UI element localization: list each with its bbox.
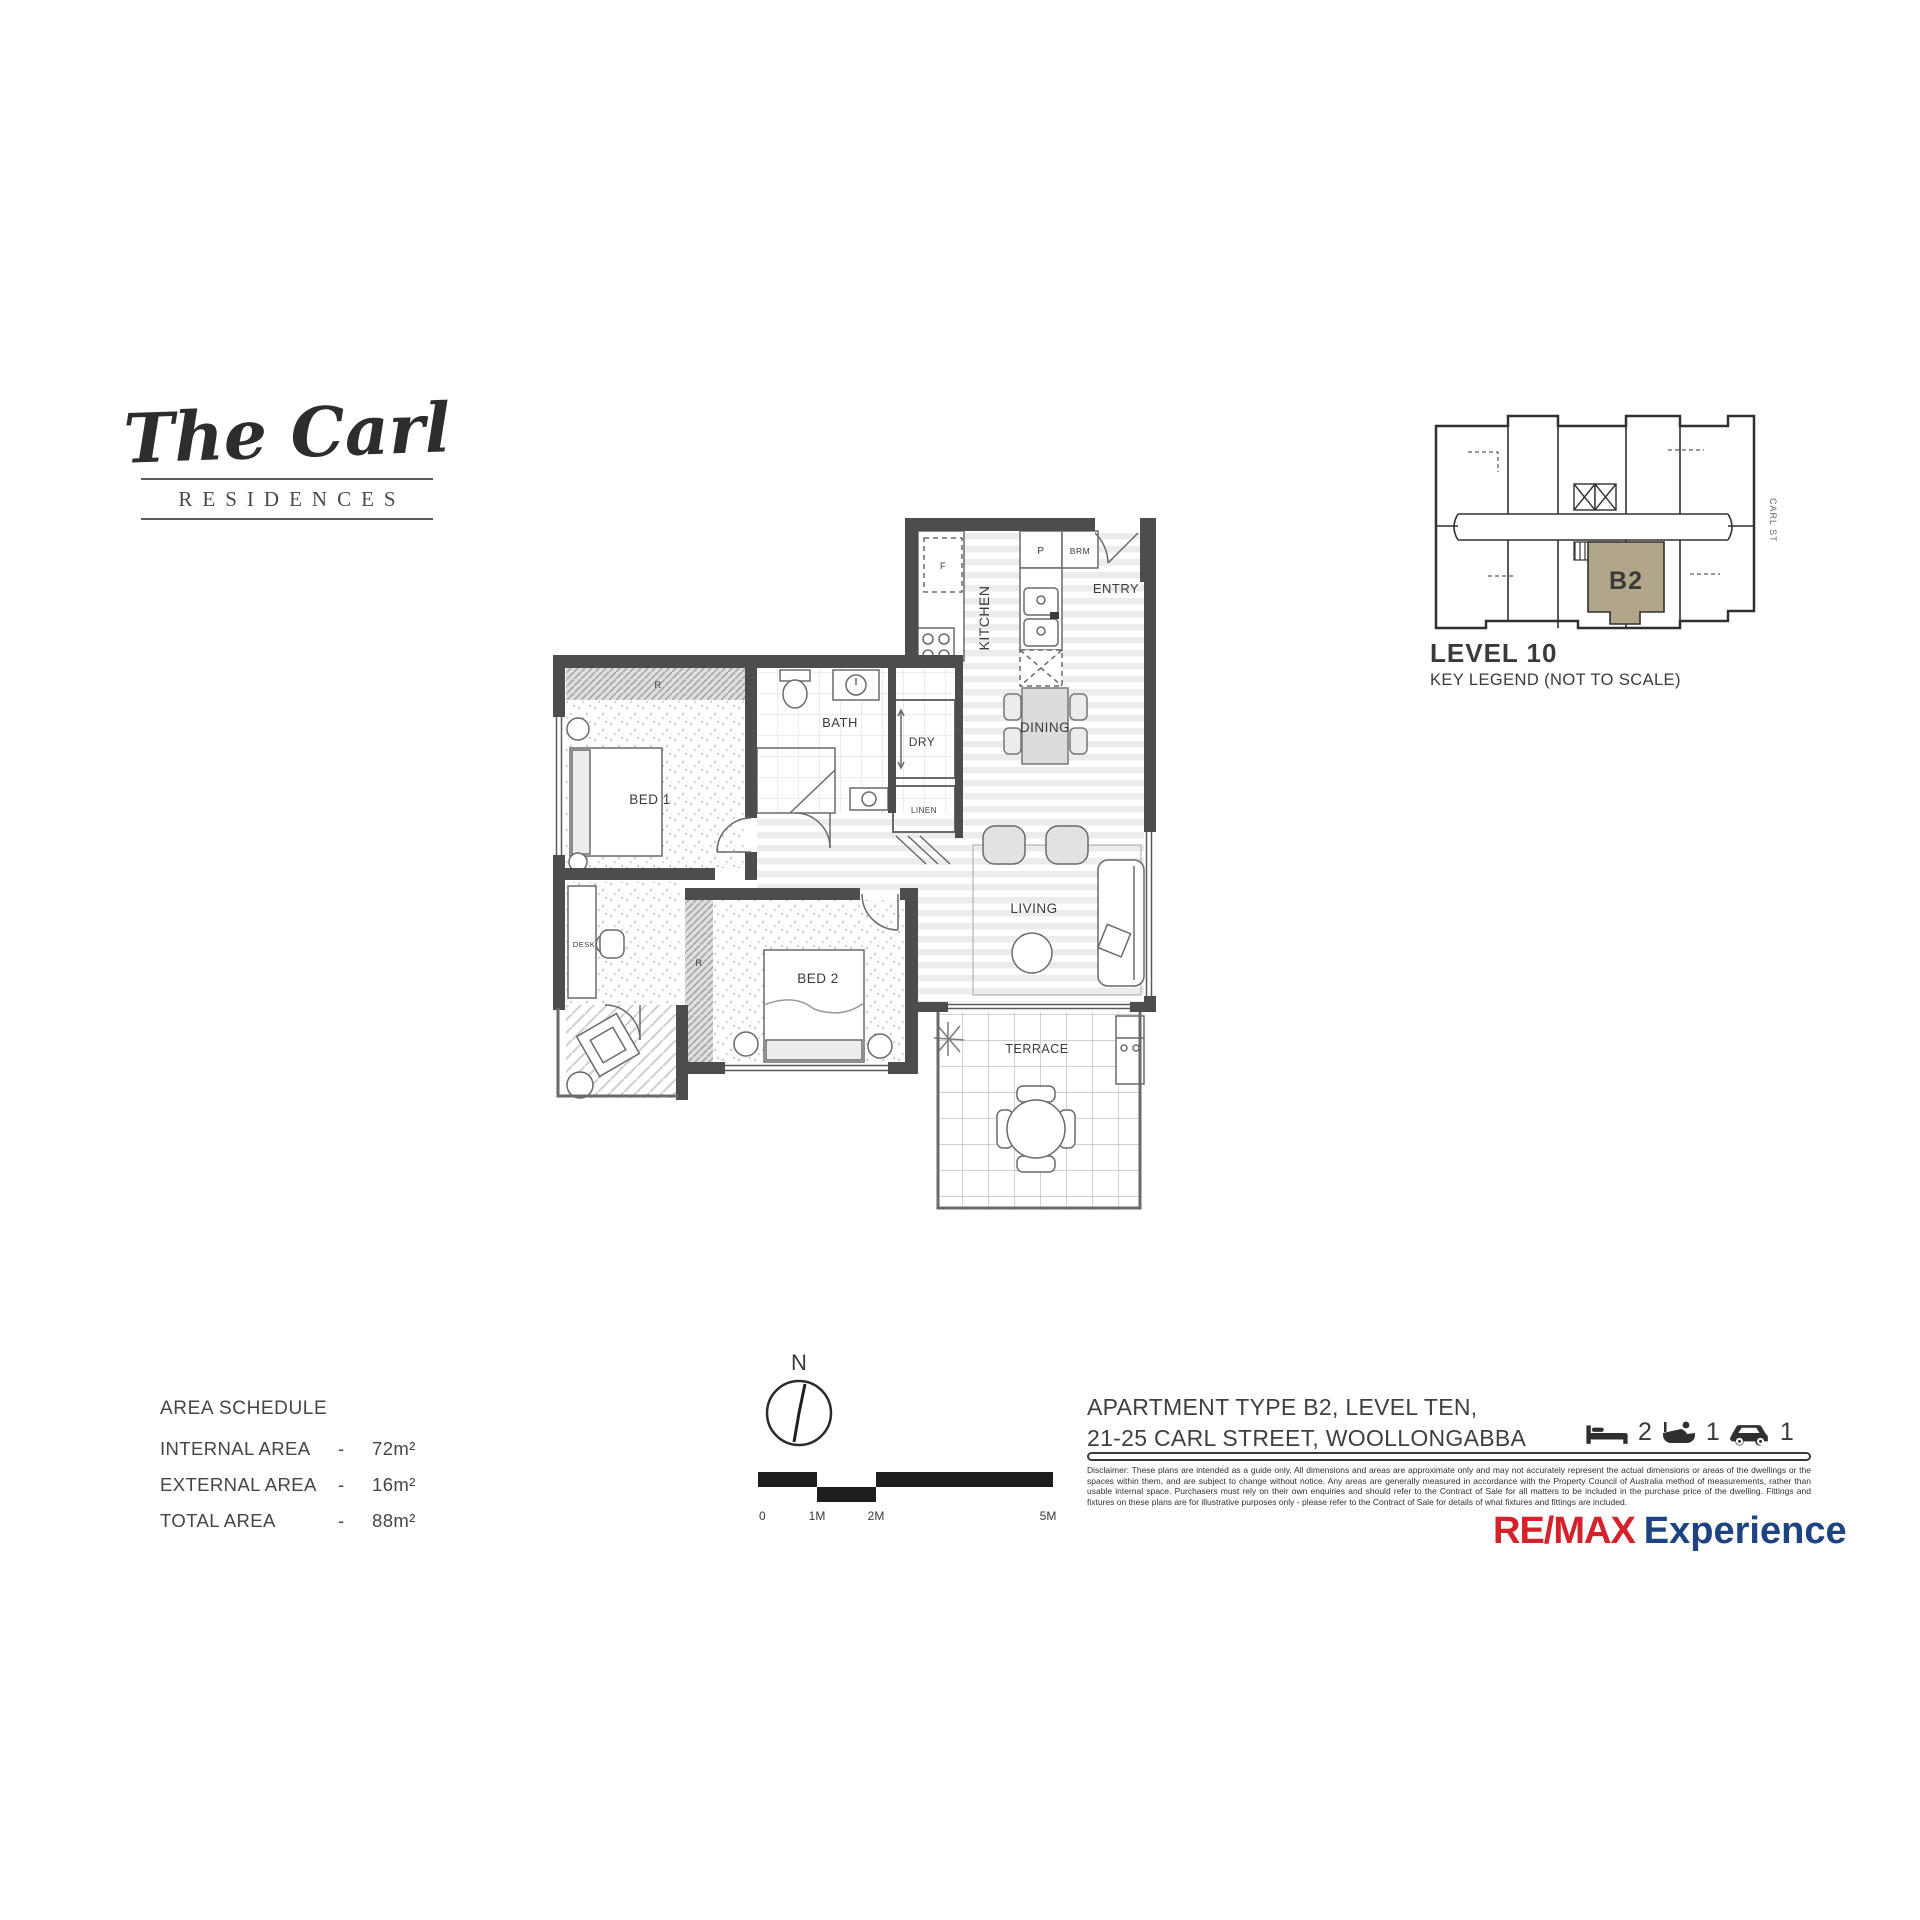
scale-2m: 2M <box>868 1509 885 1523</box>
label-dining: DINING <box>1020 720 1070 735</box>
north-label: N <box>791 1350 807 1375</box>
scale-1m: 1M <box>809 1509 826 1523</box>
label-kitchen: KITCHEN <box>976 586 992 651</box>
label-bed1: BED 1 <box>629 792 671 807</box>
key-legend-plan: B2 <box>1428 406 1763 642</box>
label-pantry: P <box>1037 546 1044 557</box>
legend-building-outline: B2 <box>1436 416 1754 628</box>
address-line2: 21-25 CARL STREET, WOOLLONGABBA <box>1087 1423 1526 1454</box>
disclaimer-text: Disclaimer: These plans are intended as … <box>1087 1465 1811 1507</box>
label-fridge: F <box>940 561 946 571</box>
area-schedule-title: AREA SCHEDULE <box>160 1398 540 1420</box>
legend-unit-label: B2 <box>1609 567 1643 595</box>
feature-icons: 2 1 1 <box>1585 1418 1794 1447</box>
label-linen: LINEN <box>911 806 937 815</box>
label-broom: BRM <box>1070 546 1090 556</box>
bath-icon <box>1661 1420 1697 1446</box>
area-row-total: TOTAL AREA - 88m² <box>160 1510 540 1532</box>
legend-unit-b2: B2 <box>1588 542 1664 624</box>
legend-caption: KEY LEGEND (NOT TO SCALE) <box>1430 671 1681 690</box>
label-bath: BATH <box>822 715 858 730</box>
north-compass: N <box>757 1350 841 1452</box>
lift-core <box>1574 484 1616 510</box>
remax-logo: RE/MAX Experience <box>1493 1510 1847 1553</box>
address-line1: APARTMENT TYPE B2, LEVEL TEN, <box>1087 1392 1526 1423</box>
label-entry: ENTRY <box>1093 581 1139 596</box>
label-desk: DESK <box>573 940 595 949</box>
logo-subtitle: RESIDENCES <box>141 478 433 520</box>
street-label: CARL ST <box>1768 498 1778 543</box>
scale-0: 0 <box>759 1509 766 1523</box>
scale-5m: 5M <box>1040 1509 1057 1523</box>
remax-office-name: Experience <box>1644 1510 1847 1553</box>
bed-count: 2 <box>1638 1418 1652 1447</box>
legend-level-title: LEVEL 10 <box>1430 638 1557 669</box>
area-row-internal: INTERNAL AREA - 72m² <box>160 1438 540 1460</box>
area-row-external: EXTERNAL AREA - 16m² <box>160 1474 540 1496</box>
label-dry: DRY <box>909 735 936 749</box>
bed-icon <box>1585 1420 1629 1446</box>
divider-rule <box>1087 1452 1811 1461</box>
remax-wordmark: RE/MAX <box>1493 1510 1635 1553</box>
brand-logo: The Carl RESIDENCES <box>112 400 462 520</box>
label-terrace: TERRACE <box>1005 1042 1068 1056</box>
scale-bar: 0 1M 2M 5M <box>753 1466 1058 1526</box>
label-robe1: R <box>655 680 662 690</box>
logo-title: The Carl <box>111 394 463 474</box>
floorplan-page: The Carl RESIDENCES <box>0 0 1920 1920</box>
area-schedule: AREA SCHEDULE INTERNAL AREA - 72m² EXTER… <box>160 1398 540 1546</box>
main-floor-plan: KITCHEN ENTRY DINING LIVING TERRACE BATH… <box>545 415 1160 1220</box>
car-icon <box>1729 1420 1771 1446</box>
apartment-address: APARTMENT TYPE B2, LEVEL TEN, 21-25 CARL… <box>1087 1392 1526 1454</box>
bath-count: 1 <box>1706 1418 1720 1447</box>
label-robe2: R <box>696 958 703 968</box>
label-living: LIVING <box>1010 901 1057 916</box>
car-count: 1 <box>1780 1418 1794 1447</box>
label-bed2: BED 2 <box>797 971 839 986</box>
